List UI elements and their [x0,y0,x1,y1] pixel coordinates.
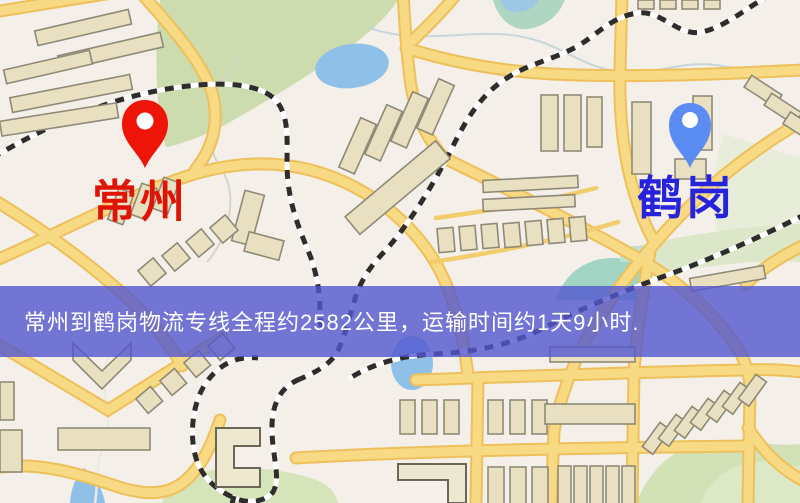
route-map-image: 常州 鹤岗 常州到鹤岗物流专线全程约2582公里，运输时间约1天9小时. [0,0,800,503]
route-info-text: 常州到鹤岗物流专线全程约2582公里，运输时间约1天9小时. [24,305,640,337]
destination-city-label: 鹤岗 [637,176,735,222]
route-info-banner: 常州到鹤岗物流专线全程约2582公里，运输时间约1天9小时. [0,286,800,357]
origin-city-label: 常州 [92,180,188,225]
map-canvas [0,0,800,503]
